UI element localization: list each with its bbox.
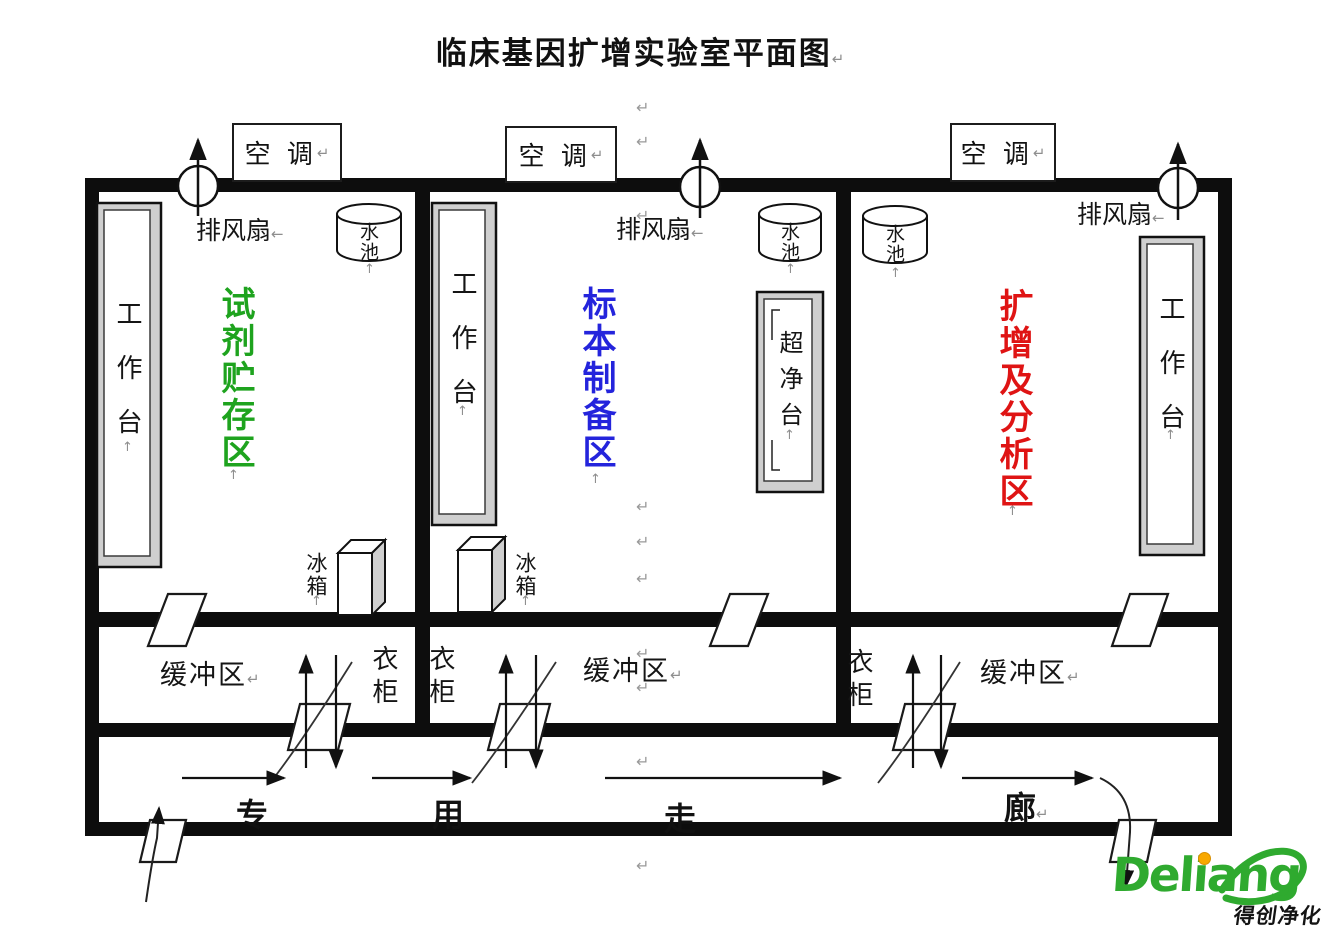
exhaust-fan-symbol-left <box>178 140 218 216</box>
fridge-symbol-2 <box>458 537 505 612</box>
floorplan-drawing <box>0 0 1324 929</box>
anchor-mark: ↑ <box>122 440 133 455</box>
zone-label-reagent: 试剂贮存区 <box>218 286 252 471</box>
right-wall <box>1218 178 1232 836</box>
return-mark: ↵ <box>247 670 260 688</box>
zone-label-specimen: 标本制备区 <box>579 286 613 471</box>
return-mark: ↵ <box>636 856 649 875</box>
corridor-char-2: 用 <box>432 790 464 836</box>
logo-i-dot <box>1198 852 1211 865</box>
zone-label-amplification: 扩增及分析区 <box>996 288 1030 510</box>
return-mark: ↵ <box>636 497 649 516</box>
floorplan-page: 临床基因扩增实验室平面图↵ <box>0 0 1324 929</box>
ac-box-left: 空 调↵ <box>232 123 342 182</box>
return-mark: ↵ <box>636 678 649 697</box>
ac-box-right: 空 调↵ <box>950 123 1056 182</box>
sink-label-2: 水池 <box>779 222 798 262</box>
anchor-mark: ↑ <box>1007 504 1018 519</box>
return-mark: ↵ <box>1036 805 1049 823</box>
ac-box-middle: 空 调↵ <box>505 126 617 183</box>
walls <box>85 178 1232 836</box>
exhaust-fan-label-left: 排风扇← <box>196 218 284 243</box>
fridge-label-1: 冰箱 <box>305 552 326 598</box>
buffer-label-2: 缓冲区↵ <box>583 658 683 685</box>
buffer-label-3: 缓冲区↵ <box>980 660 1080 687</box>
anchor-mark: ↑ <box>1165 428 1176 443</box>
swing-door-1 <box>270 655 352 783</box>
left-mark: ← <box>691 224 704 242</box>
return-mark: ↵ <box>636 532 649 551</box>
ac-label: 空 调 <box>519 136 591 173</box>
anchor-mark: ↑ <box>364 262 375 277</box>
deliang-logo: Deliang 得创净化 <box>1110 844 1324 929</box>
wardrobe-label-2: 衣柜 <box>427 645 453 711</box>
workbench-label-1: 工作台 <box>114 300 140 462</box>
return-mark: ↵ <box>317 144 330 162</box>
anchor-mark: ↑ <box>785 262 796 277</box>
pass-door-3 <box>1112 594 1168 646</box>
buffer-label-1: 缓冲区↵ <box>160 662 260 689</box>
swing-door-2 <box>472 655 556 783</box>
exhaust-fan-label-right: 排风扇← <box>1077 202 1165 227</box>
room-buffer-wall <box>85 612 1232 627</box>
return-mark: ↵ <box>636 206 649 225</box>
corridor-char-1: 专 <box>236 790 268 836</box>
exhaust-fan-label-middle: 排风扇← <box>616 217 704 242</box>
return-mark: ↵ <box>636 132 649 151</box>
return-mark: ↵ <box>1067 668 1080 686</box>
return-mark: ↵ <box>1033 144 1046 162</box>
logo-caption: 得创净化 <box>1232 900 1324 929</box>
return-mark: ↵ <box>636 98 649 117</box>
anchor-mark: ↑ <box>457 404 468 419</box>
anchor-mark: ↑ <box>784 428 795 443</box>
anchor-mark: ↑ <box>890 266 901 281</box>
buffer-corridor-wall <box>85 723 1232 737</box>
return-mark: ↵ <box>636 644 649 663</box>
anchor-mark: ↑ <box>228 468 239 483</box>
fridge-symbol-1 <box>338 540 385 615</box>
clean-bench-label: 超净台 <box>777 330 801 438</box>
return-mark: ↵ <box>636 569 649 588</box>
return-mark: ↵ <box>670 666 683 684</box>
corridor-char-4: 廊↵ <box>1004 783 1049 829</box>
swing-door-3 <box>878 655 960 783</box>
wardrobe-label-1: 衣柜 <box>370 645 396 711</box>
left-mark: ← <box>1152 209 1165 227</box>
anchor-mark: ↑ <box>311 594 322 609</box>
return-mark: ↵ <box>636 752 649 771</box>
ac-label: 空 调 <box>245 134 317 171</box>
return-mark: ↵ <box>591 146 604 164</box>
anchor-mark: ↑ <box>590 472 601 487</box>
sink-label-1: 水池 <box>358 222 377 262</box>
anchor-mark: ↑ <box>520 594 531 609</box>
corridor-char-3: 走 <box>664 794 696 840</box>
sink-label-3: 水池 <box>884 224 903 264</box>
wardrobe-label-3: 衣柜 <box>845 648 871 714</box>
exhaust-fan-symbol-middle <box>680 140 720 218</box>
left-mark: ← <box>271 225 284 243</box>
ac-label: 空 调 <box>961 134 1033 171</box>
fridge-label-2: 冰箱 <box>514 552 535 598</box>
